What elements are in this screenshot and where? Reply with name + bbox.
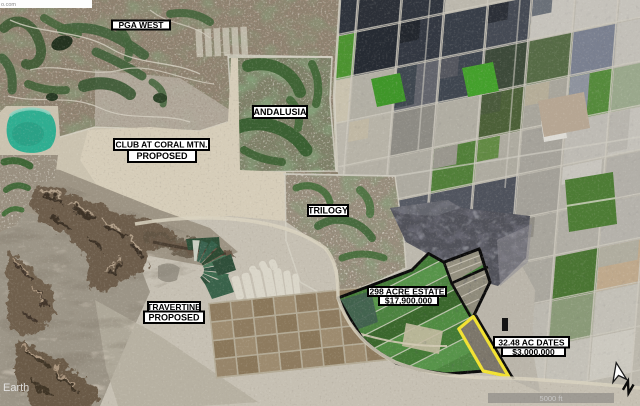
svg-text:PGA WEST: PGA WEST <box>118 20 164 30</box>
svg-text:Earth: Earth <box>3 382 29 394</box>
svg-text:$17,900,000: $17,900,000 <box>385 296 433 306</box>
svg-text:o.com: o.com <box>1 2 16 8</box>
svg-text:$3,000,000: $3,000,000 <box>512 347 555 357</box>
svg-text:PROPOSED: PROPOSED <box>136 151 188 161</box>
svg-text:32.48 AC DATES: 32.48 AC DATES <box>498 337 564 347</box>
svg-text:CLUB AT CORAL MTN.: CLUB AT CORAL MTN. <box>116 140 208 150</box>
svg-text:5000 ft: 5000 ft <box>540 394 564 403</box>
svg-text:TRAVERTINE: TRAVERTINE <box>147 302 201 312</box>
svg-text:PROPOSED: PROPOSED <box>148 313 200 323</box>
svg-text:ANDALUSIA: ANDALUSIA <box>254 107 307 117</box>
svg-text:TRILOGY: TRILOGY <box>308 206 348 216</box>
